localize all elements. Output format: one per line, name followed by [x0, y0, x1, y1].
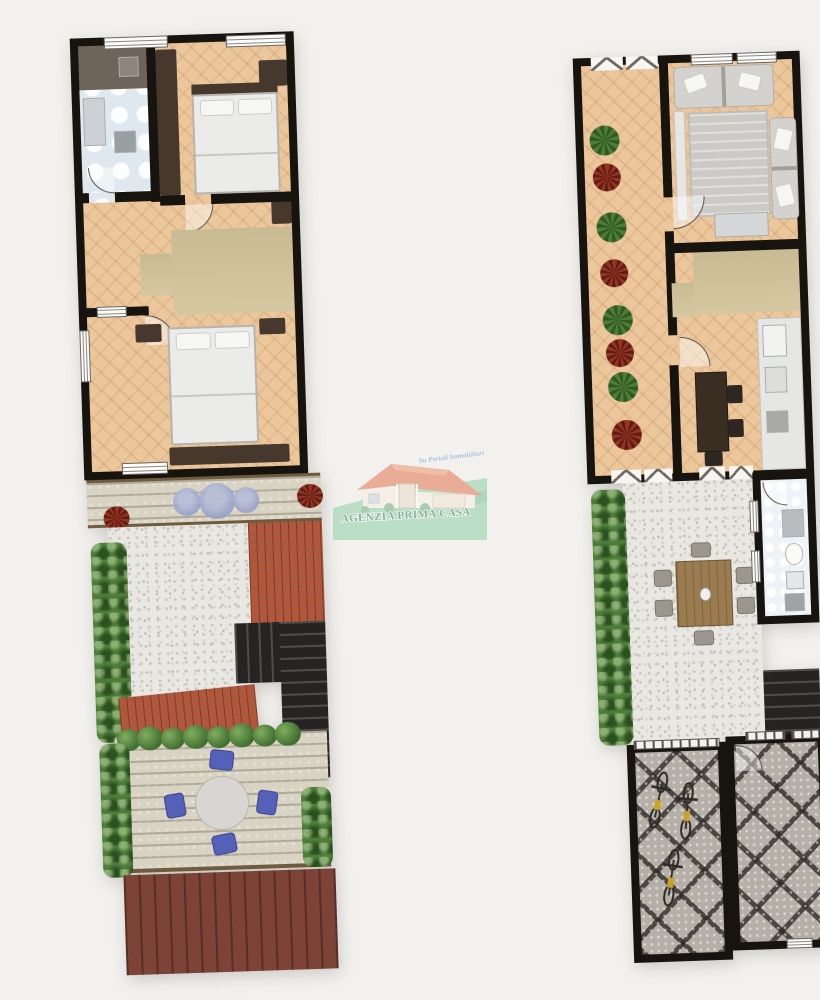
agency-tagline: Su Portali Immobiliari: [418, 450, 484, 465]
dining-table-indoor: [695, 371, 730, 452]
dining-chair: [704, 452, 722, 467]
french-door-v: [611, 469, 641, 483]
casement-window-v: [626, 56, 658, 70]
living-top-window-2: [737, 51, 777, 63]
french-door-v: [644, 468, 672, 482]
dining-chair: [727, 385, 743, 404]
terrace-hedge-left: [99, 743, 133, 878]
bush: [228, 723, 255, 748]
bush: [137, 726, 164, 751]
blue-chair: [163, 792, 187, 819]
blue-chair: [211, 832, 239, 857]
sink-appliance: [118, 56, 139, 77]
dining-chair: [728, 419, 744, 438]
cooktop: [766, 410, 789, 433]
top-window-1: [104, 35, 168, 49]
outdoor-chair: [691, 542, 712, 558]
bush: [161, 727, 186, 750]
nightstand-left: [135, 324, 162, 343]
pillow: [200, 99, 235, 116]
bike-room-walls: [627, 742, 734, 963]
top-window-2: [226, 34, 286, 48]
bedroom2-left-window: [79, 330, 91, 382]
bathroom-window: [749, 500, 759, 532]
left-apartment-walls: [70, 31, 309, 480]
kitchen-counter-run: [757, 317, 806, 470]
stove-unit: [114, 131, 137, 154]
mosaic-table: [233, 487, 260, 514]
courtyard-staircase: [763, 668, 820, 738]
sofa-pillow: [774, 183, 796, 208]
outdoor-dining-table: [675, 559, 733, 627]
pillow: [238, 98, 273, 115]
floorplan-screenshot: Su Portali Immobiliari AGENZIA PRIMA CAS…: [0, 0, 820, 1000]
bush: [183, 724, 210, 749]
blue-chair: [209, 749, 235, 771]
logo-window: [369, 494, 379, 503]
french-door-v: [729, 466, 753, 480]
bathroom-window-2: [751, 550, 761, 582]
duvet-fold: [196, 152, 278, 157]
nightstand-right: [259, 318, 286, 335]
sofa-pillow: [737, 71, 762, 92]
paved-room-rail-2: [791, 729, 819, 739]
french-door-v: [699, 467, 725, 481]
sofa-pillow: [773, 127, 794, 152]
washing-machine: [784, 593, 805, 612]
sofa-pillow: [683, 72, 709, 95]
maroon-deck: [123, 868, 338, 975]
duvet-fold: [172, 393, 256, 398]
paved-room-floor: [734, 741, 820, 942]
outdoor-chair: [694, 630, 715, 646]
kitchen-sink: [765, 366, 788, 393]
bush: [207, 726, 232, 749]
sofa-top: [673, 64, 774, 109]
round-table: [194, 775, 250, 831]
paved-room-bottom-gap: [787, 938, 813, 949]
outdoor-chair: [655, 599, 674, 617]
bathroom-walls: [752, 470, 819, 624]
closet-zone-right: [693, 249, 801, 315]
fridge: [762, 324, 787, 357]
closet-zone-tab: [140, 253, 173, 296]
teapot: [699, 587, 711, 601]
bicycle: [673, 780, 701, 842]
casement-window-v: [591, 57, 623, 71]
bush: [253, 724, 278, 747]
bedroom2-wall-window: [97, 306, 127, 318]
right-apartment-walls: [573, 51, 815, 485]
logo-door: [399, 484, 415, 508]
pillow: [176, 332, 212, 350]
sideboard: [714, 212, 769, 238]
agency-logo-graphic: Su Portali Immobiliari AGENZIA PRIMA CAS…: [333, 450, 487, 542]
blue-chair: [256, 789, 279, 816]
living-top-window: [691, 53, 733, 65]
pillow: [214, 331, 250, 349]
closet-zone-right-tab: [672, 283, 695, 318]
bedroom2-bed: [167, 325, 259, 446]
shower-unit: [83, 98, 107, 147]
bedroom2-bottom-window: [122, 462, 168, 476]
terrace-door-gap-2: [668, 335, 678, 365]
agency-watermark: Su Portali Immobiliari AGENZIA PRIMA CAS…: [333, 450, 487, 542]
bath-sink: [786, 571, 805, 590]
mosaic-table: [199, 482, 236, 519]
outdoor-chair: [737, 597, 756, 615]
paved-room-rail: [745, 731, 785, 741]
paved-room-walls: [725, 733, 820, 950]
deck-strip: [86, 473, 321, 529]
sofa-right: [769, 117, 800, 220]
closet-zone: [171, 226, 295, 315]
left-floor-plan: [70, 31, 341, 978]
bath-door-gap: [89, 192, 115, 203]
bedroom1-wardrobe-corner: [259, 59, 288, 86]
terrace-hedge-right: [301, 786, 334, 867]
right-floor-plan: [570, 50, 820, 970]
mosaic-table: [173, 488, 202, 517]
outdoor-chair: [654, 569, 673, 587]
flower-pot: [297, 484, 324, 509]
bedroom1-bed: [192, 92, 281, 195]
shower: [782, 509, 805, 538]
